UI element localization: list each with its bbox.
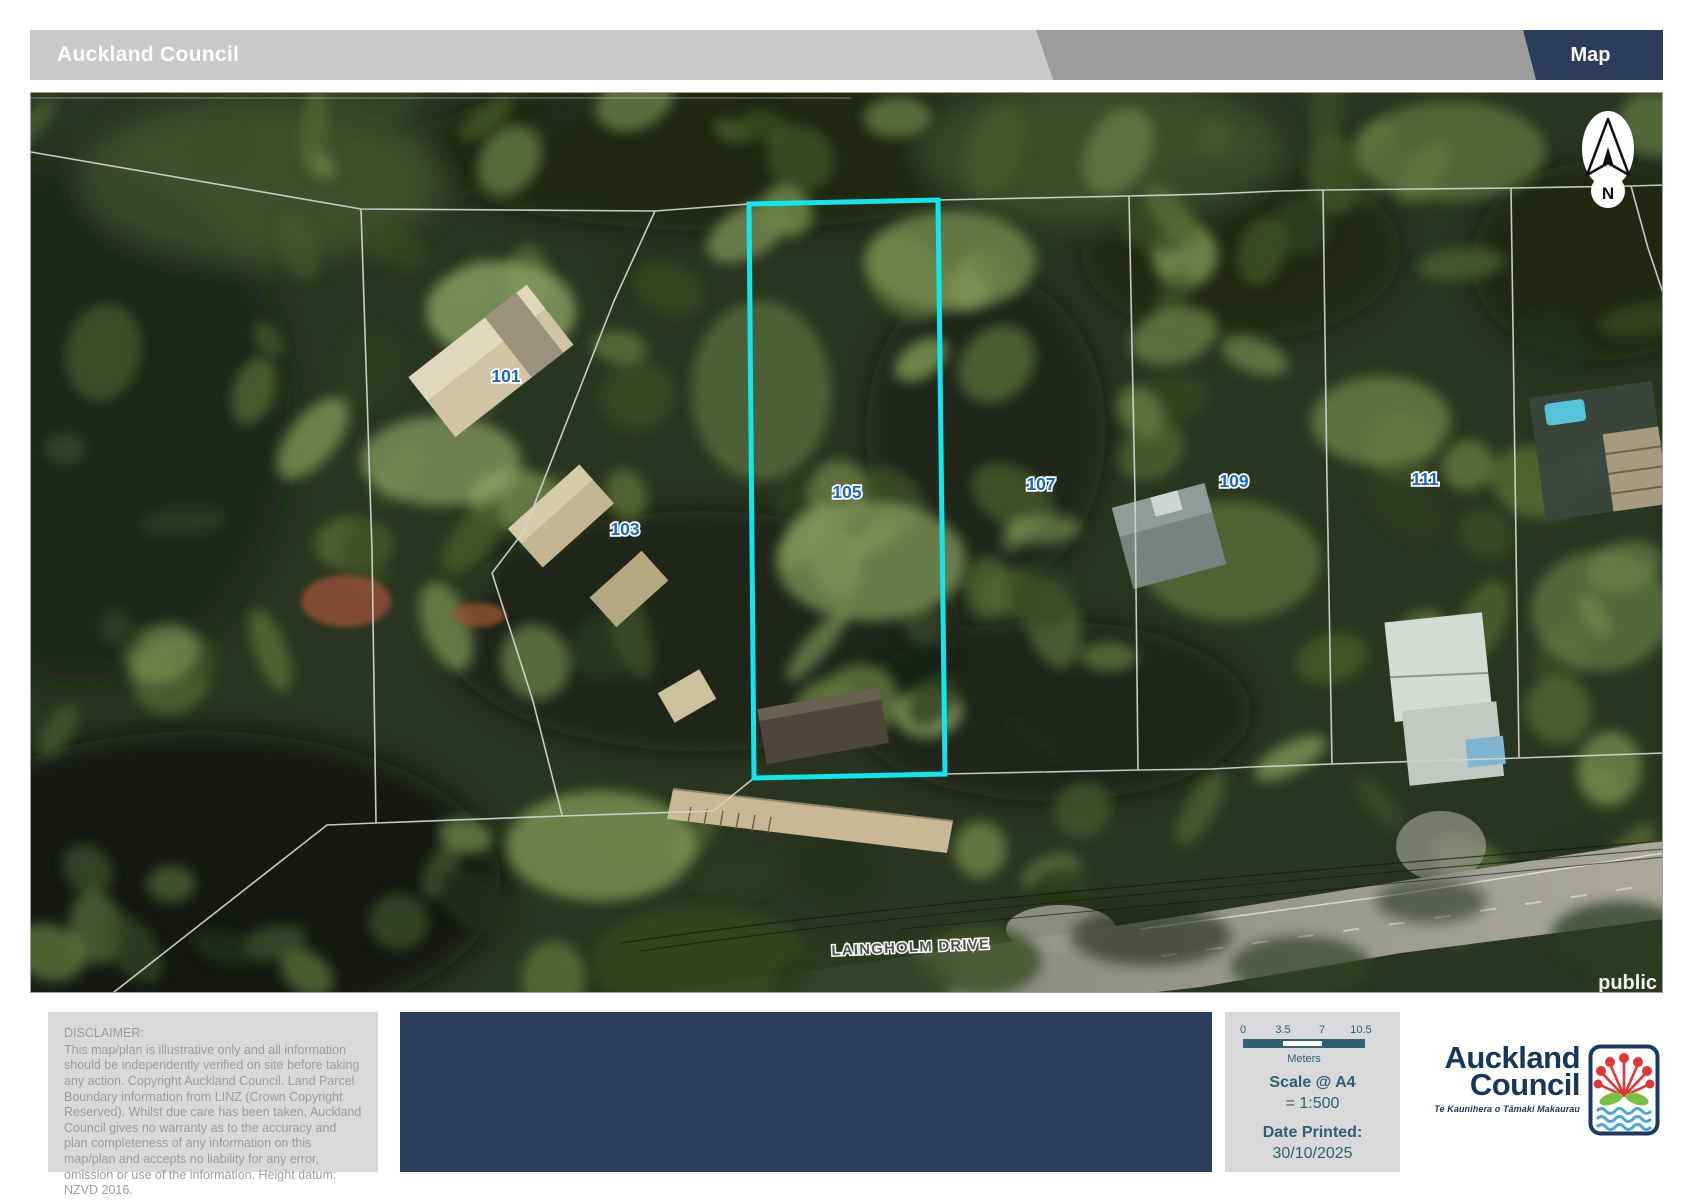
map-tab-label: Map xyxy=(1518,30,1663,80)
footer-navy-panel xyxy=(400,1012,1212,1172)
scale-tick-3-5: 3.5 xyxy=(1275,1024,1290,1036)
logo-line2: Council xyxy=(1428,1071,1580,1098)
parcel-label-105: 105 xyxy=(832,482,861,502)
map-print-page: Auckland Council Map xyxy=(0,0,1697,1200)
disclaimer-body: This map/plan is illustrative only and a… xyxy=(64,1043,362,1199)
scale-heading: Scale @ A4 xyxy=(1225,1074,1400,1092)
parcel-label-103: 103 xyxy=(610,519,639,539)
page-title: Auckland Council xyxy=(57,30,239,80)
scale-tick-7: 7 xyxy=(1319,1024,1325,1036)
logo-tagline: Te Kaunihera o Tāmaki Makaurau xyxy=(1428,1104,1580,1114)
date-printed-heading: Date Printed: xyxy=(1225,1124,1400,1142)
scale-tick-10-5: 10.5 xyxy=(1350,1024,1371,1036)
disclaimer-panel: DISCLAIMER: This map/plan is illustrativ… xyxy=(48,1012,378,1172)
public-watermark: public xyxy=(1598,972,1657,993)
header-band: Auckland Council Map xyxy=(30,30,1663,80)
parcel-label-109: 109 xyxy=(1219,471,1248,491)
pool-house xyxy=(1529,381,1663,521)
disclaimer-heading: DISCLAIMER: xyxy=(64,1026,362,1042)
pohutukawa-emblem-icon xyxy=(1588,1044,1660,1136)
scale-tick-0: 0 xyxy=(1240,1024,1246,1036)
parcel-label-107: 107 xyxy=(1026,474,1055,494)
north-label: N xyxy=(1602,184,1614,203)
aerial-map-svg: 101 103 105 107 109 111 LAINGHOLM DRIVE … xyxy=(31,93,1663,993)
map-canvas: 101 103 105 107 109 111 LAINGHOLM DRIVE … xyxy=(30,92,1663,993)
scale-value: = 1:500 xyxy=(1225,1095,1400,1113)
auckland-council-logo: Auckland Council Te Kaunihera o Tāmaki M… xyxy=(1428,1040,1664,1140)
scale-bar-segment xyxy=(1283,1039,1322,1048)
parcel-label-101: 101 xyxy=(491,366,520,386)
scale-bar xyxy=(1243,1039,1365,1048)
scale-unit: Meters xyxy=(1287,1053,1321,1065)
parcel-label-111: 111 xyxy=(1411,469,1439,489)
scale-panel: 0 3.5 7 10.5 Meters Scale @ A4 = 1:500 D… xyxy=(1225,1012,1400,1172)
logo-wordmark: Auckland Council Te Kaunihera o Tāmaki M… xyxy=(1428,1044,1580,1114)
date-printed-value: 30/10/2025 xyxy=(1225,1145,1400,1163)
